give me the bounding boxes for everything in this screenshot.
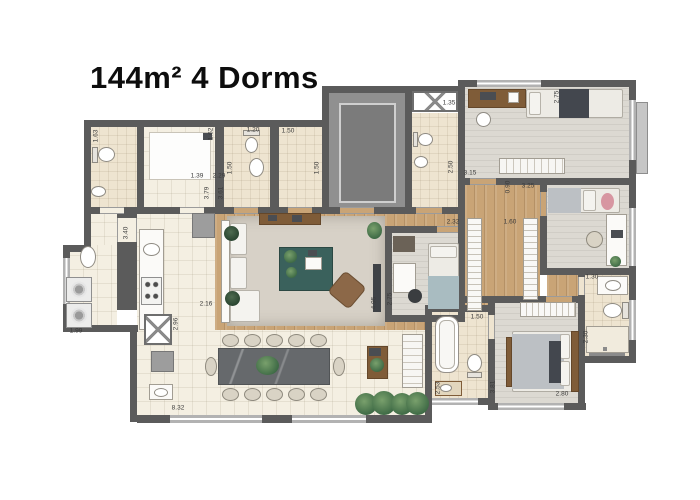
wardrobe [393, 236, 415, 252]
bed-pillow [583, 190, 596, 211]
dining-chair [310, 388, 327, 401]
dining-chair [222, 334, 239, 347]
dimension-label: 2.16 [200, 301, 213, 308]
door-opening [488, 315, 495, 339]
dining-chair [244, 388, 261, 401]
dining-chair [310, 334, 327, 347]
dining-chair [266, 334, 283, 347]
dimension-label: 1.60 [504, 219, 517, 226]
dimension-label: 1.63 [93, 130, 100, 143]
stove [141, 277, 162, 305]
desk-chair [408, 289, 422, 303]
floor-plan: 144m² 4 Dorms 1.631.392.291.621.201.501.… [0, 0, 700, 500]
wall [270, 120, 279, 214]
centerpiece-plant [256, 356, 279, 375]
elevator-cab [339, 103, 396, 203]
dimension-label: 3.15 [464, 170, 477, 177]
headboard [571, 331, 579, 392]
bed-blanket [559, 89, 589, 118]
tray-item [308, 250, 317, 256]
desk-chair [476, 112, 491, 127]
drain [603, 347, 607, 351]
door-opening [340, 207, 374, 214]
dimension-label: 1.39 [191, 173, 204, 180]
wall [137, 127, 144, 207]
dimension-label: 3.81 [490, 381, 497, 394]
oven [151, 351, 174, 372]
fridge [192, 213, 215, 238]
dimension-label: 0.90 [505, 181, 512, 194]
bed-pillow [430, 246, 457, 258]
toilet-tank [622, 302, 629, 319]
shower [586, 326, 629, 353]
dimension-label: 3.79 [204, 187, 211, 200]
dimension-label: 1.30 [586, 274, 599, 281]
sink [91, 186, 106, 197]
dimension-label: 3.61 [218, 187, 225, 200]
bathtub [435, 316, 459, 373]
settee [402, 334, 423, 388]
console-item [268, 215, 277, 221]
sink [605, 280, 621, 291]
plant [370, 358, 384, 372]
planter [406, 392, 429, 415]
dimension-label: 2.32 [447, 219, 460, 226]
dryer [66, 303, 92, 328]
pink-pillow [601, 193, 614, 210]
wardrobe [467, 218, 482, 311]
toilet-bowl [245, 137, 258, 153]
dimension-label: 3.40 [123, 227, 130, 240]
desk-item [611, 230, 623, 238]
window [170, 415, 262, 423]
door-opening [540, 192, 547, 216]
dimension-label: 1.50 [282, 128, 295, 135]
shaft [144, 314, 172, 345]
window [629, 300, 636, 340]
dimension-label: 2.30 [583, 331, 590, 344]
dimension-label: 4.95 [371, 297, 378, 310]
dining-chair [266, 388, 283, 401]
dining-chair [333, 357, 345, 376]
dimension-label: 2.96 [173, 318, 180, 331]
window [432, 398, 478, 405]
bed-pillow [560, 361, 570, 386]
window [629, 100, 636, 160]
tray [305, 257, 322, 270]
dimension-label: 1.50 [227, 162, 234, 175]
window [292, 415, 366, 423]
door-opening [578, 277, 585, 295]
dining-chair [205, 357, 217, 376]
kitchen-sink [143, 243, 160, 256]
bed-blanket [548, 188, 581, 213]
plant [224, 226, 239, 241]
wall [578, 356, 636, 363]
washer [66, 277, 92, 302]
wardrobe [523, 218, 538, 300]
dimension-label: 1.50 [471, 314, 484, 321]
bench [499, 158, 565, 174]
dimension-label: 2.80 [556, 391, 569, 398]
facade-ledge [636, 102, 648, 174]
plant [225, 291, 240, 306]
dining-chair [288, 334, 305, 347]
plant [367, 222, 382, 239]
plant [610, 256, 621, 267]
dining-chair [222, 388, 239, 401]
sink [440, 384, 452, 392]
desk-item [508, 92, 519, 103]
towel-bar [589, 353, 625, 356]
door-opening [470, 178, 496, 185]
bed-blanket [428, 276, 459, 309]
door-opening [100, 207, 124, 214]
window [498, 403, 564, 410]
toilet-bowl [98, 147, 115, 162]
frame [369, 348, 381, 356]
toilet-tank [467, 372, 482, 378]
dimension-label: 1.62 [208, 128, 215, 141]
door-opening [234, 207, 258, 214]
sink [154, 388, 168, 397]
door-opening [437, 226, 458, 233]
wall [84, 120, 91, 252]
toilet-bowl [467, 354, 482, 372]
wall [215, 120, 224, 214]
laundry-sink [80, 246, 96, 268]
dining-chair [288, 388, 305, 401]
desk-chair [586, 231, 603, 248]
wall [458, 80, 465, 214]
sink [249, 158, 264, 177]
toilet-bowl [418, 133, 433, 146]
bed-pillow [529, 92, 541, 115]
wall [130, 325, 137, 422]
wall [322, 86, 329, 214]
dimension-label: 3.25 [522, 183, 535, 190]
dimension-label: 1.20 [247, 127, 260, 134]
dimension-label: 1.99 [70, 328, 83, 335]
page-title: 144m² 4 Dorms [90, 60, 319, 96]
dimension-label: 1.35 [443, 100, 456, 107]
door-opening [416, 207, 442, 214]
dining-chair [244, 334, 261, 347]
bed-pillow [560, 334, 570, 359]
monitor [480, 92, 496, 100]
dimension-label: 2.50 [448, 161, 455, 174]
window [629, 208, 636, 266]
sink [414, 156, 428, 168]
wall [385, 226, 392, 322]
wall [405, 86, 412, 214]
plant [286, 267, 297, 278]
wall [84, 120, 329, 127]
dimension-label: 2.53 [435, 382, 442, 395]
console-item [292, 215, 302, 222]
foot-bench [506, 337, 512, 387]
dimension-label: 2.29 [213, 173, 226, 180]
wardrobe [520, 302, 576, 317]
vestibule-floor [547, 275, 578, 296]
dimension-label: 2.75 [387, 293, 394, 306]
bed-runner [549, 341, 561, 383]
plant [284, 250, 297, 263]
toilet-bowl [603, 303, 622, 318]
sofa-cushion [230, 257, 247, 289]
dimension-label: 2.75 [554, 91, 561, 104]
dimension-label: 1.50 [314, 162, 321, 175]
dimension-label: 8.32 [172, 405, 185, 412]
window [477, 80, 541, 87]
